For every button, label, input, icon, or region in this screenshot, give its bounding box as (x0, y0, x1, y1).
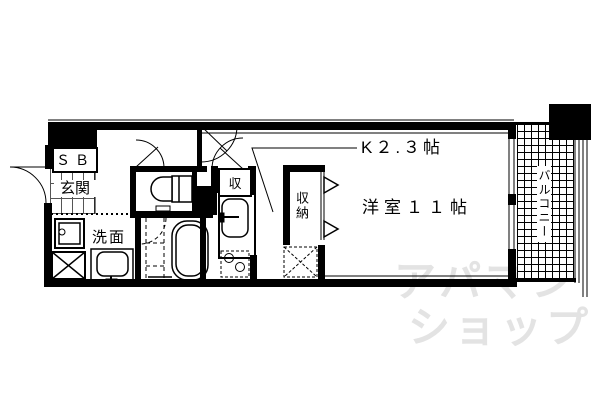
balcony-bottom-edge (515, 278, 576, 282)
shoe-box-label: ＳＢ (56, 150, 94, 170)
storage-box: 収 (218, 168, 252, 197)
wall-wash-bath (135, 215, 141, 279)
wall-top-ext (514, 122, 550, 125)
wall-kitchen-hall (197, 122, 202, 168)
washing-machine-icon (55, 219, 84, 248)
wash-basin-icon (91, 249, 133, 282)
pillar-top-right (549, 104, 591, 140)
fridge-space-icon (284, 247, 317, 277)
wall-closet-left (283, 165, 290, 245)
entrance-label: 玄関 (54, 180, 96, 197)
wall-bath-kitchen (200, 211, 206, 279)
wall-left-lower (44, 203, 52, 287)
balcony-label: バルコニー (537, 166, 551, 242)
entrance-door-icon (10, 167, 46, 203)
toilet-icon (151, 176, 192, 211)
shoe-box: ＳＢ (52, 147, 98, 173)
window-mullion-middle (508, 194, 516, 205)
wall-bottom (44, 279, 517, 287)
wall-toilet-left (130, 166, 136, 213)
storage-box-label: 収 (228, 173, 241, 192)
kitchen-sink-icon (219, 199, 248, 237)
wall-top (48, 122, 514, 130)
washroom-label: 洗面 (92, 230, 126, 245)
kitchen-label: K２.３帖 (361, 139, 443, 156)
western-room-label: 洋室１１帖 (362, 199, 472, 216)
toilet-door-icon (136, 140, 164, 167)
bath-door-icon (140, 218, 166, 279)
washer-pan-icon (52, 252, 85, 279)
wall-fridge-right-stub (318, 245, 325, 280)
kitchen-door-icons (201, 126, 243, 169)
window-mullion-top (508, 122, 516, 139)
wall-stove-right-stub (250, 255, 257, 280)
floorplan-canvas: アパマン ショップ (0, 0, 600, 400)
wall-entrance-header (48, 122, 97, 149)
closet-door-icons (321, 172, 338, 240)
stove-icon (221, 251, 249, 277)
closet-label: 収納 (295, 191, 308, 221)
wall-storage-left-stub (211, 166, 218, 193)
